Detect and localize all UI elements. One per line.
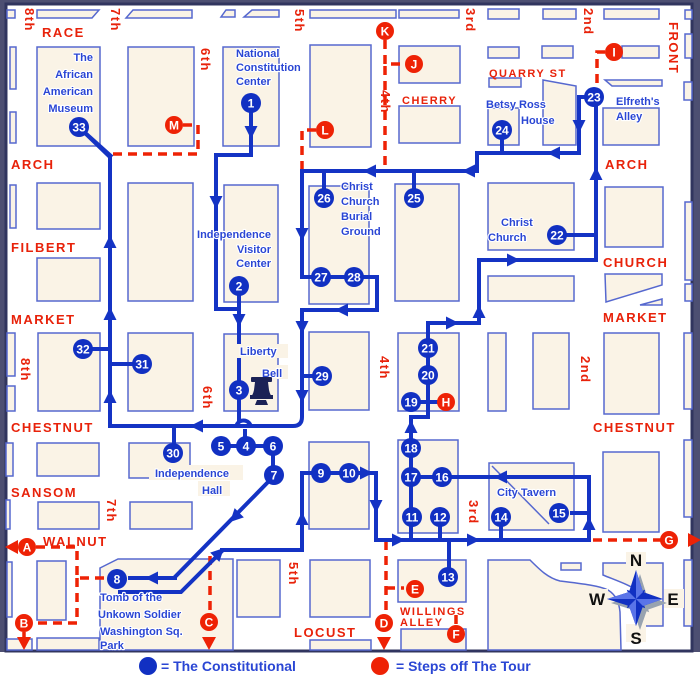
svg-text:Visitor: Visitor	[237, 244, 272, 256]
svg-text:15: 15	[552, 507, 566, 521]
svg-text:G: G	[664, 534, 673, 548]
svg-text:L: L	[321, 124, 328, 138]
svg-text:27: 27	[314, 271, 328, 285]
svg-text:4th: 4th	[377, 356, 392, 380]
svg-text:K: K	[381, 25, 390, 39]
svg-text:2: 2	[236, 280, 243, 294]
svg-text:CHESTNUT: CHESTNUT	[593, 420, 676, 435]
svg-text:National: National	[236, 48, 279, 60]
svg-text:5th: 5th	[286, 562, 301, 586]
svg-text:11: 11	[406, 511, 419, 525]
svg-text:13: 13	[441, 571, 455, 585]
svg-text:6: 6	[270, 440, 277, 454]
svg-text:CHERRY: CHERRY	[402, 95, 457, 107]
svg-text:3: 3	[236, 384, 243, 398]
svg-text:Center: Center	[236, 258, 272, 270]
svg-text:31: 31	[135, 358, 149, 372]
svg-text:ARCH: ARCH	[11, 157, 55, 172]
svg-text:B: B	[20, 617, 29, 631]
svg-text:Burial: Burial	[341, 211, 372, 223]
svg-text:CHURCH: CHURCH	[603, 255, 668, 270]
svg-text:House: House	[521, 115, 555, 127]
svg-text:4: 4	[243, 440, 250, 454]
svg-text:Tomb of the: Tomb of the	[100, 592, 162, 604]
svg-text:21: 21	[421, 342, 435, 356]
svg-text:Elfreth's: Elfreth's	[616, 96, 660, 108]
svg-text:N: N	[630, 551, 642, 570]
svg-text:19: 19	[404, 396, 418, 410]
svg-text:5: 5	[218, 440, 225, 454]
svg-text:MARKET: MARKET	[603, 310, 668, 325]
svg-text:M: M	[169, 119, 179, 133]
svg-text:3rd: 3rd	[463, 8, 478, 33]
svg-text:10: 10	[342, 467, 356, 481]
svg-text:18: 18	[404, 442, 418, 456]
svg-text:23: 23	[587, 91, 601, 105]
svg-text:RACE: RACE	[42, 25, 85, 40]
svg-text:14: 14	[494, 511, 508, 525]
svg-text:C: C	[205, 616, 214, 630]
svg-text:D: D	[380, 617, 389, 631]
svg-text:F: F	[452, 628, 459, 642]
svg-text:FILBERT: FILBERT	[11, 240, 76, 255]
svg-text:Park: Park	[100, 640, 125, 652]
svg-text:32: 32	[76, 343, 90, 357]
svg-text:12: 12	[433, 511, 447, 525]
svg-text:25: 25	[407, 192, 421, 206]
svg-text:30: 30	[166, 447, 180, 461]
svg-text:S: S	[630, 629, 641, 648]
svg-text:Independence: Independence	[155, 468, 229, 480]
svg-text:Church: Church	[341, 196, 380, 208]
svg-text:29: 29	[315, 370, 329, 384]
svg-text:5th: 5th	[292, 9, 307, 33]
svg-text:African: African	[55, 69, 93, 81]
svg-text:Unkown Soldier: Unkown Soldier	[98, 609, 182, 621]
svg-text:ALLEY: ALLEY	[400, 617, 444, 629]
svg-text:2nd: 2nd	[578, 356, 593, 384]
svg-text:8th: 8th	[22, 8, 37, 32]
svg-text:8: 8	[114, 573, 121, 587]
svg-text:American: American	[43, 86, 93, 98]
svg-text:16: 16	[435, 471, 449, 485]
svg-text:FRONT: FRONT	[666, 22, 681, 74]
svg-text:ARCH: ARCH	[605, 157, 649, 172]
svg-text:= The Constitutional: = The Constitutional	[161, 658, 296, 674]
svg-text:2nd: 2nd	[581, 8, 596, 36]
svg-text:QUARRY ST: QUARRY ST	[489, 68, 567, 80]
svg-text:Liberty: Liberty	[240, 346, 278, 358]
svg-text:Museum: Museum	[48, 103, 93, 115]
svg-text:J: J	[411, 58, 418, 72]
svg-text:8th: 8th	[18, 358, 33, 382]
svg-text:E: E	[667, 590, 678, 609]
svg-text:LOCUST: LOCUST	[294, 625, 356, 640]
svg-text:Christ: Christ	[341, 181, 373, 193]
svg-text:= Steps off The Tour: = Steps off The Tour	[396, 658, 531, 674]
svg-text:Hall: Hall	[202, 485, 222, 497]
svg-text:CHESTNUT: CHESTNUT	[11, 420, 94, 435]
svg-text:28: 28	[347, 271, 361, 285]
svg-text:6th: 6th	[198, 48, 213, 72]
svg-text:Betsy Ross: Betsy Ross	[486, 99, 546, 111]
svg-text:7: 7	[271, 469, 278, 483]
svg-text:The: The	[73, 52, 93, 64]
svg-text:1: 1	[248, 97, 255, 111]
svg-text:33: 33	[72, 121, 86, 135]
svg-text:9: 9	[318, 467, 325, 481]
svg-text:W: W	[589, 590, 606, 609]
svg-text:7th: 7th	[104, 499, 119, 523]
svg-text:Alley: Alley	[616, 111, 643, 123]
svg-text:Independence: Independence	[197, 229, 271, 241]
svg-text:City Tavern: City Tavern	[497, 487, 556, 499]
svg-text:E: E	[411, 583, 419, 597]
svg-text:20: 20	[421, 369, 435, 383]
svg-text:Center: Center	[236, 76, 272, 88]
svg-text:Ground: Ground	[341, 226, 381, 238]
svg-text:3rd: 3rd	[466, 500, 481, 525]
svg-text:SANSOM: SANSOM	[11, 485, 77, 500]
svg-text:26: 26	[317, 192, 331, 206]
svg-text:A: A	[23, 541, 32, 555]
svg-text:Christ: Christ	[501, 217, 533, 229]
svg-text:MARKET: MARKET	[11, 312, 76, 327]
svg-text:I: I	[612, 46, 615, 60]
svg-text:Church: Church	[488, 232, 527, 244]
svg-text:Constitution: Constitution	[236, 62, 301, 74]
svg-text:17: 17	[404, 471, 418, 485]
svg-text:22: 22	[550, 229, 564, 243]
svg-text:6th: 6th	[200, 386, 215, 410]
svg-text:24: 24	[495, 124, 509, 138]
svg-text:Washington Sq.: Washington Sq.	[100, 626, 183, 638]
svg-text:7th: 7th	[108, 8, 123, 32]
svg-text:H: H	[442, 396, 451, 410]
